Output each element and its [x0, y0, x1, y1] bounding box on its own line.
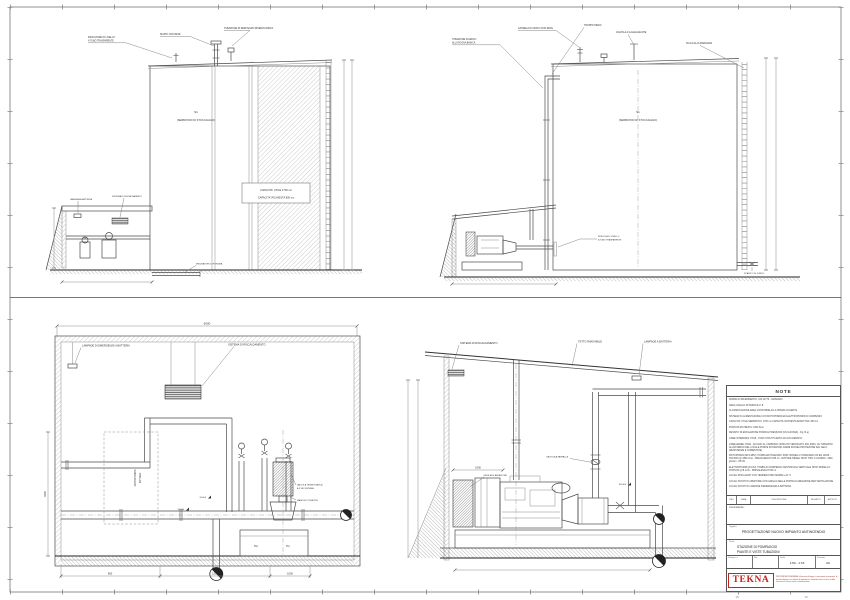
- callout-vent: SFIATO CON RETE: [160, 33, 181, 36]
- note-line: DENSITA' DI EROGAZIONE POMPA E PRESSIONI…: [729, 432, 838, 435]
- drawing-number-label: Disegno n.: [728, 557, 738, 559]
- callout-overflow: TROPPO PIENO: [584, 25, 602, 27]
- note-line: CLASSIFICAZIONE AREA CONFORME ALLA NORMA…: [729, 410, 838, 413]
- callout-removable-roof: TETTO RIMOVIBILE: [578, 340, 602, 344]
- dim-grille-1000: 1000: [475, 466, 481, 470]
- callout-drain-sewer: TUBAZIONE SCARICO: [452, 38, 476, 41]
- drawing-title-line2: PIANTE E VISTE TUBAZIONI: [737, 550, 779, 554]
- rev-col-descrizione: DESCRIZIONE: [751, 496, 808, 504]
- note-line: SISTEMA DI ALIMENTAZIONE CON MOTOPOMPA E…: [729, 416, 838, 419]
- property-disclaimer: PROPRIETA' RISERVATA - A termini di legg…: [776, 576, 839, 583]
- rev-col-redatto: REDATTO: [808, 496, 825, 504]
- callout-level-indicator-2: A TUBO TRASPARENTE: [88, 40, 114, 43]
- callout-bottom-drain: SCARICO DI FONDO: [744, 272, 765, 275]
- callout-emergency-lamps: LAMPADE DI EMERGENZA A BATTERIA: [82, 344, 130, 348]
- drawing-sheet: 15 16 INDICATORE DI LIVELLO A TUBO TRASP…: [0, 0, 850, 600]
- title-label: Titolo:: [729, 541, 735, 543]
- tekna-logo: TEKNA: [728, 573, 774, 588]
- view-pump-room-section-left: 6000 LAMPADE DI EMERGENZA A BATTERIA SIS…: [43, 322, 360, 584]
- note-line: AREA LIVELLO DI PERICOLO: B: [729, 405, 838, 408]
- note-line: ELETTROPOMPA (P1-P2): POMPA DI COMPENSO …: [729, 467, 838, 473]
- scale-cell: Scala 1:50 - 1:15: [779, 556, 816, 568]
- revision-table: REV DATA DESCRIZIONE REDATTO APPROV.: [727, 495, 840, 504]
- subject-box: Oggetto: PROGETTAZIONE NUOVO IMPIANTO AN…: [727, 524, 840, 539]
- future-pump-label: MOTOPOMPA: [133, 469, 137, 486]
- callout-drain-sewer-2: ALLA FOGNA BIANCA: [452, 42, 476, 45]
- callout-heating-unit: SISTEMA DI RISCALDAMENTO: [112, 195, 142, 198]
- client-box: Committente:: [727, 504, 840, 524]
- callout-battery-lamp: LAMPADA A BATTERIA: [70, 198, 93, 201]
- drawing-canvas: 15 16 INDICATORE DI LIVELLO A TUBO TRASP…: [0, 0, 850, 600]
- notes-header: NOTE: [727, 386, 840, 397]
- format-value: A0: [816, 561, 840, 565]
- note-line: LOCALI DOTATI DI APERTURE CON GRIGLIA NE…: [729, 481, 838, 484]
- project-subject: PROGETTAZIONE NUOVO IMPIANTO ANTINCENDIO: [727, 530, 840, 534]
- drawing-title-box: Titolo: STAZIONE DI POMPAGGIO PIANTE E V…: [727, 539, 840, 555]
- title-block: NOTE NORMA DI RIFERIMENTO: UNI 10779 - 0…: [726, 385, 841, 592]
- level-mark-a: 90.600: [200, 497, 207, 499]
- thermostatic-valve-label: VALVOLA TERMOSTATICA: [297, 484, 323, 487]
- pump-p1-label: P1: [286, 544, 290, 548]
- grid-ref-16: 16: [804, 595, 808, 599]
- callout-ladder: SCALA ALLA MARINARA: [686, 42, 713, 45]
- tank-code: S1: [636, 110, 640, 114]
- thermostatic-valve-label-2: A 3 VIE SISTEMA: [297, 487, 314, 490]
- scale-label: Scala: [780, 557, 785, 559]
- flow-meter-label: MISURATORE DI PORTATA: [196, 263, 223, 266]
- logo-row: TEKNA PROPRIETA' RISERVATA - A termini d…: [727, 568, 840, 591]
- callout-vent-candle: CANDELA DI SFIATO CON RETE: [518, 27, 553, 30]
- view-tank-elevation-right: TUBAZIONE SCARICO ALLA FOGNA BIANCA CAND…: [440, 25, 800, 286]
- view-tank-elevation-left: INDICATORE DI LIVELLO A TUBO TRASPARENTE…: [46, 27, 362, 284]
- rev-col-rev: REV: [727, 496, 737, 504]
- tank-code: S1: [194, 110, 198, 114]
- note-line: CAPACITA' UTILE SERBATOIO: 1700 mc CAPAC…: [729, 421, 838, 424]
- dim-1000: 1000: [287, 572, 293, 576]
- dim-950: 950: [108, 572, 113, 576]
- callout-level-gauge: SPECOLA DI LIVELLO: [598, 235, 620, 238]
- callout-level-gauge-2: A TUBO TRASPARENTE: [598, 238, 622, 241]
- note-line: PORTATA RICHIESTA: 1800 l/min: [729, 427, 838, 430]
- dim-1250: 1250: [212, 572, 218, 576]
- rev-col-approv: APPROV.: [825, 496, 840, 504]
- tank-name: (SERBATOIO DI STOCCAGGIO): [619, 118, 657, 122]
- format-label: Formato: [817, 557, 825, 559]
- file-label: File: [754, 557, 757, 559]
- dim-room-width: 6000: [204, 322, 211, 326]
- callout-heating-system: SISTEMA DI RISCALDAMENTO: [460, 341, 498, 345]
- grid-ref-15: 15: [735, 595, 739, 599]
- capacity-useful: CAPACITA' UTILE 1700 mc: [260, 188, 293, 192]
- rev-col-data: DATA: [737, 496, 751, 504]
- drawing-number-cell: Disegno n.: [727, 556, 753, 568]
- meta-row: Disegno n. File Scala 1:50 - 1:15 Format…: [727, 555, 840, 568]
- note-line: LINEE AEREE: PN16 - ACCIAIO AL CARBONIO …: [729, 444, 838, 453]
- note-line: MOTOPOMPA (MP1-MP2): POMPA ANTINCENDIO '…: [729, 455, 838, 464]
- note-line: LINEE INTERRATE: PN16 - TUBO STRUTTURATO…: [729, 438, 838, 441]
- callout-battery-lamps: LAMPADE A BATTERIA: [644, 340, 672, 344]
- tank-name: (SERBATOIO DI STOCCAGGIO): [177, 118, 215, 122]
- notes-body: NORMA DI RIFERIMENTO: UNI 10779 - 04/09/…: [727, 397, 840, 495]
- view-pump-room-section-right: SISTEMA DI RISCALDAMENTO TETTO RIMOVIBIL…: [406, 340, 718, 572]
- note-line: NORMA DI RIFERIMENTO: UNI 10779 - 04/09/…: [729, 399, 838, 402]
- callout-refill-pipe: TUBAZIONE DI REINTEGRO RISERVA IDRICA: [224, 27, 274, 30]
- level-mark-b: 90.000: [178, 509, 185, 511]
- pump-p2-label: P2: [254, 544, 258, 548]
- gauge-label: MANOVUOTOMETRO: [297, 499, 318, 502]
- level-mark: 100.300: [618, 484, 626, 486]
- capacity-required: CAPACITA' RICHIESTA 800 mc: [258, 196, 295, 200]
- format-cell: Formato A0: [816, 556, 840, 568]
- note-line: LOCALI DOTATI DI LAMPADE D'EMERGENZA A B…: [729, 486, 838, 489]
- future-pump-label-2: FUTURA: [138, 472, 142, 483]
- scale-value: 1:50 - 1:15: [779, 561, 815, 565]
- dim-height-3400: 3400: [43, 491, 47, 497]
- note-line: LOCALI RISCALDATI CON TEMPERATURA MINIMA…: [729, 475, 838, 478]
- butterfly-valve-label: VALVOLA A FARFALLA: [546, 456, 568, 459]
- callout-float-valve: VALVOLA A GALLEGGIANTE: [616, 31, 647, 34]
- callout-level-indicator: INDICATORE DI LIVELLO: [88, 36, 115, 39]
- drawing-title-line1: STAZIONE DI POMPAGGIO: [737, 545, 777, 549]
- subject-label: Oggetto:: [729, 526, 737, 528]
- sheet-frame: 15 16: [10, 7, 841, 599]
- callout-heating-system: SISTEMA DI RISCALDAMENTO: [228, 343, 266, 347]
- grille-label: GRIGLIA DI AERAZIONE: [483, 474, 507, 477]
- file-cell: File: [753, 556, 779, 568]
